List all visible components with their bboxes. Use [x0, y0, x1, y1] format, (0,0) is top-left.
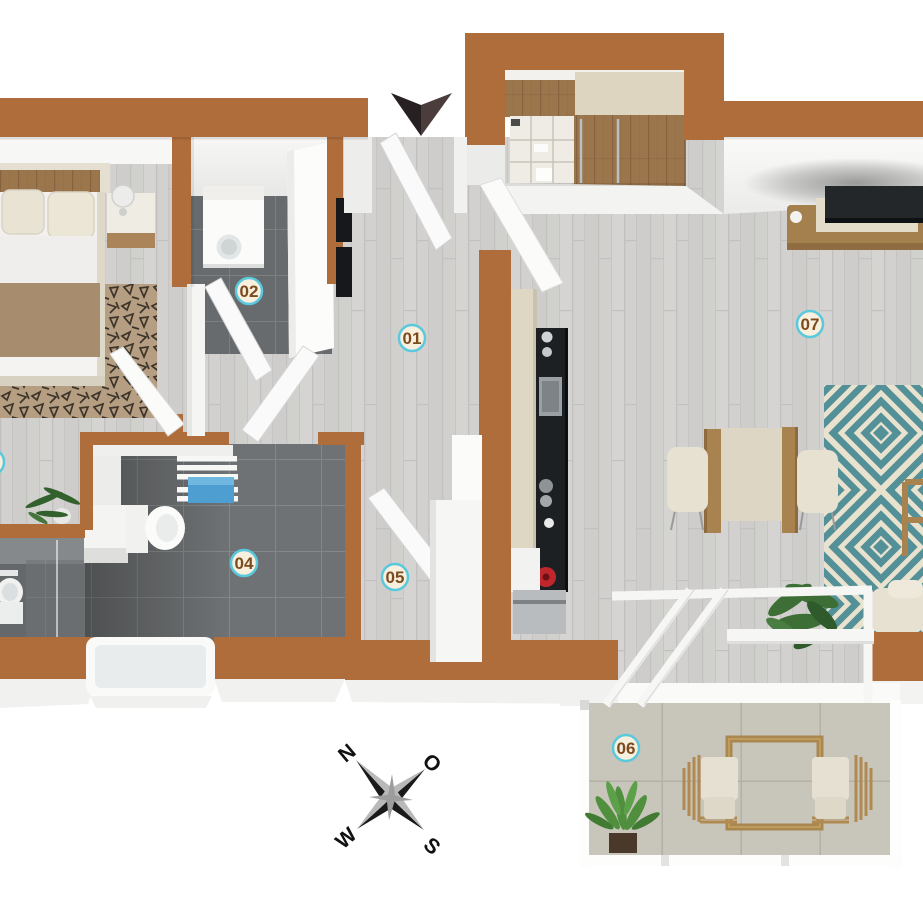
svg-text:S: S	[419, 833, 445, 859]
svg-text:07: 07	[801, 315, 820, 334]
svg-text:O: O	[418, 749, 446, 777]
svg-text:N: N	[334, 740, 360, 767]
svg-text:04: 04	[235, 554, 254, 573]
svg-text:06: 06	[617, 739, 636, 758]
svg-text:02: 02	[240, 282, 259, 301]
svg-text:W: W	[331, 823, 361, 853]
svg-text:01: 01	[403, 329, 422, 348]
svg-text:05: 05	[386, 568, 405, 587]
